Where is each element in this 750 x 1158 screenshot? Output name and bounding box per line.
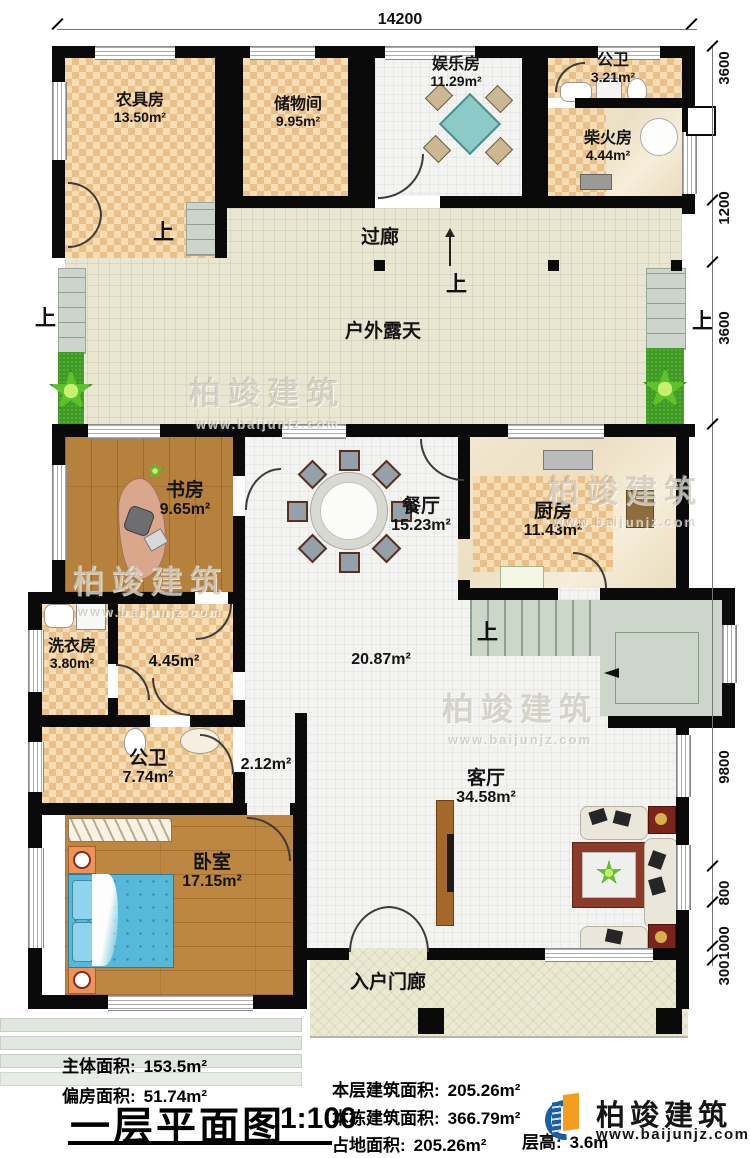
room-label-dining-room: 餐厅15.23m² bbox=[391, 496, 451, 535]
room-label-outdoor-terrace: 户外露天 bbox=[345, 321, 421, 342]
window bbox=[108, 995, 253, 1011]
window bbox=[545, 948, 653, 962]
room-label-storage-room: 储物间9.95m² bbox=[274, 96, 322, 130]
stairs-up-label: 上 bbox=[692, 305, 713, 335]
window bbox=[52, 82, 67, 160]
tv bbox=[447, 834, 454, 892]
dining-chair bbox=[287, 501, 308, 522]
stairs-up-label: 上 bbox=[153, 216, 174, 246]
window bbox=[282, 424, 346, 439]
dining-chair bbox=[339, 450, 360, 471]
room-label-farm-tool-room: 农具房13.50m² bbox=[114, 92, 166, 126]
area-label-center-hall: 20.87m² bbox=[351, 651, 411, 669]
floor-area-row: 本层建筑面积:205.26m² bbox=[332, 1076, 520, 1101]
room-label-bedroom: 卧室17.15m² bbox=[182, 852, 242, 891]
main-area-row: 主体面积:153.5m² bbox=[62, 1052, 207, 1077]
room-label-entry-porch: 入户门廊 bbox=[350, 972, 426, 993]
brand-logo-icon bbox=[543, 1090, 591, 1144]
window bbox=[52, 465, 67, 560]
title-underline bbox=[68, 1141, 332, 1145]
cooktop bbox=[543, 450, 593, 470]
dimension-line-top bbox=[57, 29, 697, 30]
dining-table-top bbox=[320, 482, 378, 540]
dimension-right: 1200 bbox=[716, 186, 732, 230]
pillow bbox=[72, 922, 94, 962]
room-label-public-bath: 公卫7.74m² bbox=[123, 748, 174, 787]
window bbox=[676, 735, 691, 797]
window bbox=[682, 132, 697, 194]
window bbox=[508, 424, 604, 439]
porch-column bbox=[418, 1008, 444, 1034]
wardrobe bbox=[68, 818, 172, 842]
direction-line bbox=[449, 236, 451, 266]
staircase-arrow bbox=[604, 668, 619, 678]
dining-chair bbox=[339, 552, 360, 573]
window bbox=[95, 46, 175, 60]
room-label-public-bath-top: 公卫3.21m² bbox=[591, 52, 635, 86]
washing-machine bbox=[76, 602, 106, 630]
dimension-top: 14200 bbox=[372, 11, 429, 29]
room-label-laundry: 洗衣房3.80m² bbox=[48, 638, 96, 672]
porch-column bbox=[656, 1008, 682, 1034]
room-label-corridor: 过廊 bbox=[361, 227, 399, 248]
dimension-right: 800 bbox=[716, 871, 732, 915]
area-label-passage: 2.12m² bbox=[241, 756, 292, 774]
stove bbox=[580, 174, 612, 190]
room-label-entertainment-room: 娱乐房11.29m² bbox=[430, 56, 481, 90]
farm-tool-room-floor bbox=[65, 58, 215, 196]
water-tank bbox=[640, 118, 678, 156]
side-table-star bbox=[655, 931, 667, 943]
footprint-row: 占地面积:205.26m² bbox=[332, 1131, 486, 1156]
stair-window bbox=[722, 625, 737, 683]
direction-arrow bbox=[445, 228, 455, 237]
room-label-kitchen: 厨房11.43m² bbox=[524, 501, 583, 540]
driveway-step bbox=[0, 1018, 302, 1032]
dimension-right: 3600 bbox=[716, 306, 732, 350]
window bbox=[28, 630, 44, 692]
window bbox=[250, 46, 315, 60]
nightstand-clock bbox=[73, 971, 91, 989]
terrace-right-steps bbox=[646, 268, 686, 350]
dimension-line-right bbox=[712, 46, 713, 966]
dimension-right: 3600 bbox=[716, 46, 732, 90]
laundry-sink bbox=[44, 604, 74, 628]
window bbox=[88, 424, 160, 439]
floor-plan: 农具房13.50m² 储物间9.95m² 娱乐房11.29m² 公卫3.21m²… bbox=[0, 0, 750, 1158]
nightstand-clock bbox=[73, 851, 91, 869]
room-label-living-room: 客厅34.58m² bbox=[456, 768, 516, 807]
room-label-study: 书房9.65m² bbox=[160, 480, 211, 519]
staircase-railing bbox=[615, 632, 699, 704]
driveway-step bbox=[0, 1036, 302, 1050]
stairs-up-label: 上 bbox=[477, 616, 498, 646]
stairs-up-label: 上 bbox=[35, 302, 56, 332]
terrace-left-steps bbox=[58, 268, 86, 354]
lobby-stair-box bbox=[186, 202, 216, 256]
bay-window bbox=[28, 848, 44, 948]
stairs-up-label: 上 bbox=[446, 268, 467, 298]
kitchen-sink bbox=[626, 490, 654, 528]
room-label-firewood-room: 柴火房4.44m² bbox=[584, 130, 632, 164]
total-area-row: 本栋建筑面积:366.79m² bbox=[332, 1104, 520, 1129]
dimension-right: 300 bbox=[716, 951, 732, 995]
brand-url: www.baijunjz.com bbox=[596, 1126, 749, 1143]
dimension-right: 9800 bbox=[716, 745, 732, 789]
area-label-hallway: 4.45m² bbox=[149, 653, 200, 671]
pillow bbox=[72, 880, 94, 920]
side-table-star bbox=[655, 813, 667, 825]
window bbox=[28, 742, 44, 792]
window bbox=[676, 845, 691, 910]
